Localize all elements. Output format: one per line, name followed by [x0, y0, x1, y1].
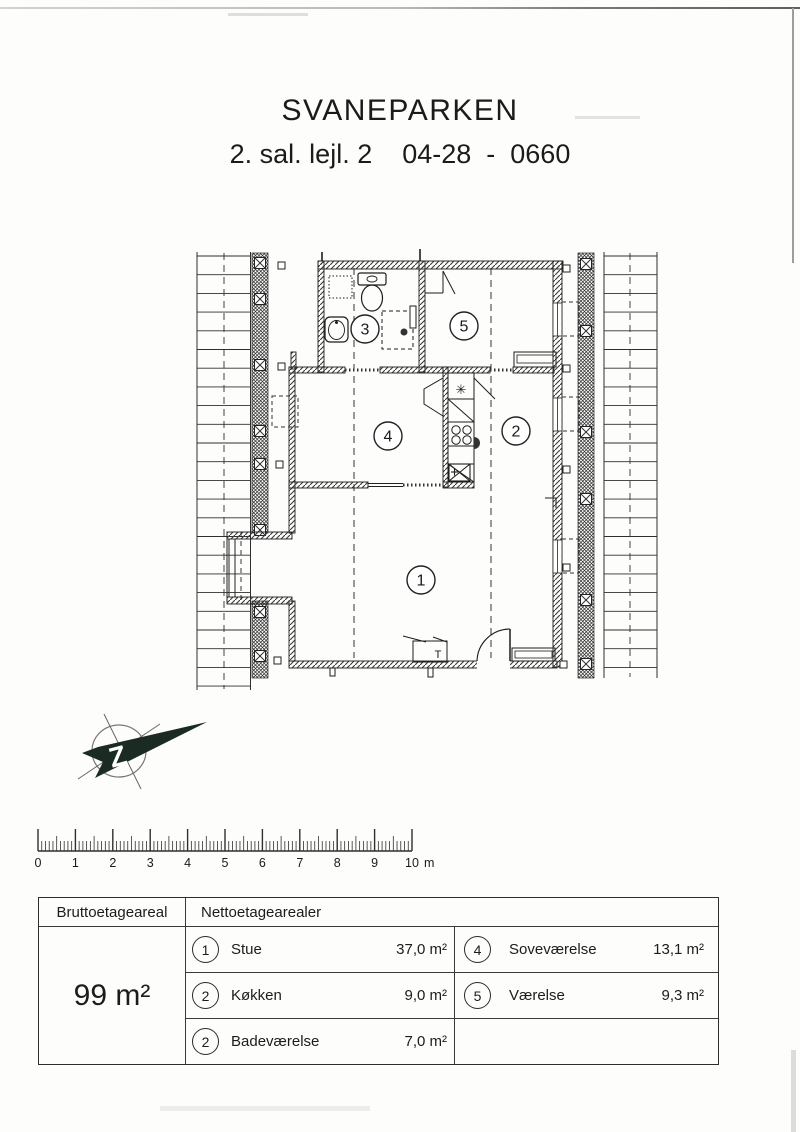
benches-and-cabinets: T [403, 352, 556, 662]
room-name: Soveværelse [509, 941, 597, 958]
roof-hatching-right [604, 256, 657, 667]
room-area: 13,1 m² [653, 941, 704, 958]
brutto-header: Bruttoetageareal [39, 898, 186, 927]
ruler-unit: m [424, 856, 434, 870]
svg-text:2: 2 [512, 424, 521, 441]
table-row-stue: 1 Stue 37,0 m² [186, 927, 455, 973]
netto-header: Nettoetagearealer [186, 898, 718, 927]
room-labels: 1 2 3 4 5 [351, 312, 530, 594]
svg-text:6: 6 [259, 856, 266, 870]
sliding-door-rail [368, 484, 403, 487]
sink-icon [325, 317, 348, 342]
t-cabinet-label: T [435, 649, 442, 661]
handle-bump [474, 437, 480, 449]
room-label-3: 3 [351, 315, 379, 343]
stove-icon [452, 426, 471, 444]
room-name: Køkken [231, 987, 282, 1004]
room-name: Stue [231, 941, 262, 958]
table-row-koekken: 2 Køkken 9,0 m² [186, 973, 455, 1019]
room-area: 9,0 m² [404, 987, 447, 1004]
svg-text:5: 5 [222, 856, 229, 870]
ruler-labels: 0 1 2 3 4 5 6 7 8 9 10 m [35, 856, 435, 870]
room-number-badge: 1 [192, 936, 219, 963]
shower-area [382, 306, 416, 349]
svg-text:3: 3 [361, 322, 370, 339]
svg-text:1: 1 [72, 856, 79, 870]
svg-text:10: 10 [405, 856, 419, 870]
room5-door [425, 271, 455, 294]
room-number-badge: 2 [192, 1028, 219, 1055]
scanned-floorplan-page: SVANEPARKEN 2. sal. lejl. 2 04-28 - 0660 [0, 0, 800, 1132]
room-label-4: 4 [374, 422, 402, 450]
kitchen-door-swing [474, 378, 495, 399]
scale-ruler: 0 1 2 3 4 5 6 7 8 9 10 m [35, 829, 435, 870]
room-number-badge: 2 [192, 982, 219, 1009]
door-openings [345, 370, 513, 485]
vent-symbol: ✳ [456, 382, 467, 397]
room-area: 9,3 m² [661, 987, 704, 1004]
room-label-5: 5 [450, 312, 478, 340]
table-row-sovevaerelse: 4 Soveværelse 13,1 m² [455, 927, 718, 973]
room-name: Badeværelse [231, 1033, 319, 1050]
t-cabinet: T [403, 636, 447, 662]
table-row-vaerelse: 5 Værelse 9,3 m² [455, 973, 718, 1019]
svg-text:4: 4 [184, 856, 191, 870]
svg-text:7: 7 [296, 856, 303, 870]
svg-text:0: 0 [35, 856, 42, 870]
kitchen-unit: ✳ [424, 373, 495, 482]
table-row-empty [455, 1019, 718, 1064]
north-arrow-icon: Z [78, 714, 207, 789]
toilet-icon [358, 273, 386, 311]
svg-text:8: 8 [334, 856, 341, 870]
svg-text:4: 4 [384, 429, 393, 446]
vent-duct [329, 276, 352, 298]
brutto-value: 99 m² [39, 927, 186, 1064]
room-name: Værelse [509, 987, 565, 1004]
room-label-1: 1 [407, 566, 435, 594]
room-area: 7,0 m² [404, 1033, 447, 1050]
dormer-window [227, 532, 241, 604]
svg-text:9: 9 [371, 856, 378, 870]
room-number-badge: 4 [464, 936, 491, 963]
room-number-badge: 5 [464, 982, 491, 1009]
area-table: Bruttoetageareal Nettoetagearealer 99 m²… [38, 897, 719, 1065]
room-label-2: 2 [502, 417, 530, 445]
entry-door [477, 629, 510, 669]
bathroom-fixtures [325, 271, 455, 349]
svg-text:5: 5 [460, 319, 469, 336]
table-row-badevaerelse: 2 Badeværelse 7,0 m² [186, 1019, 455, 1064]
folding-door [424, 378, 443, 416]
svg-text:3: 3 [147, 856, 154, 870]
svg-text:1: 1 [417, 573, 426, 590]
svg-text:2: 2 [109, 856, 116, 870]
room-area: 37,0 m² [396, 941, 447, 958]
kitchen-sink-icon [449, 464, 470, 481]
ruler-ticks [38, 829, 412, 851]
roof-hatching-left [197, 256, 250, 686]
